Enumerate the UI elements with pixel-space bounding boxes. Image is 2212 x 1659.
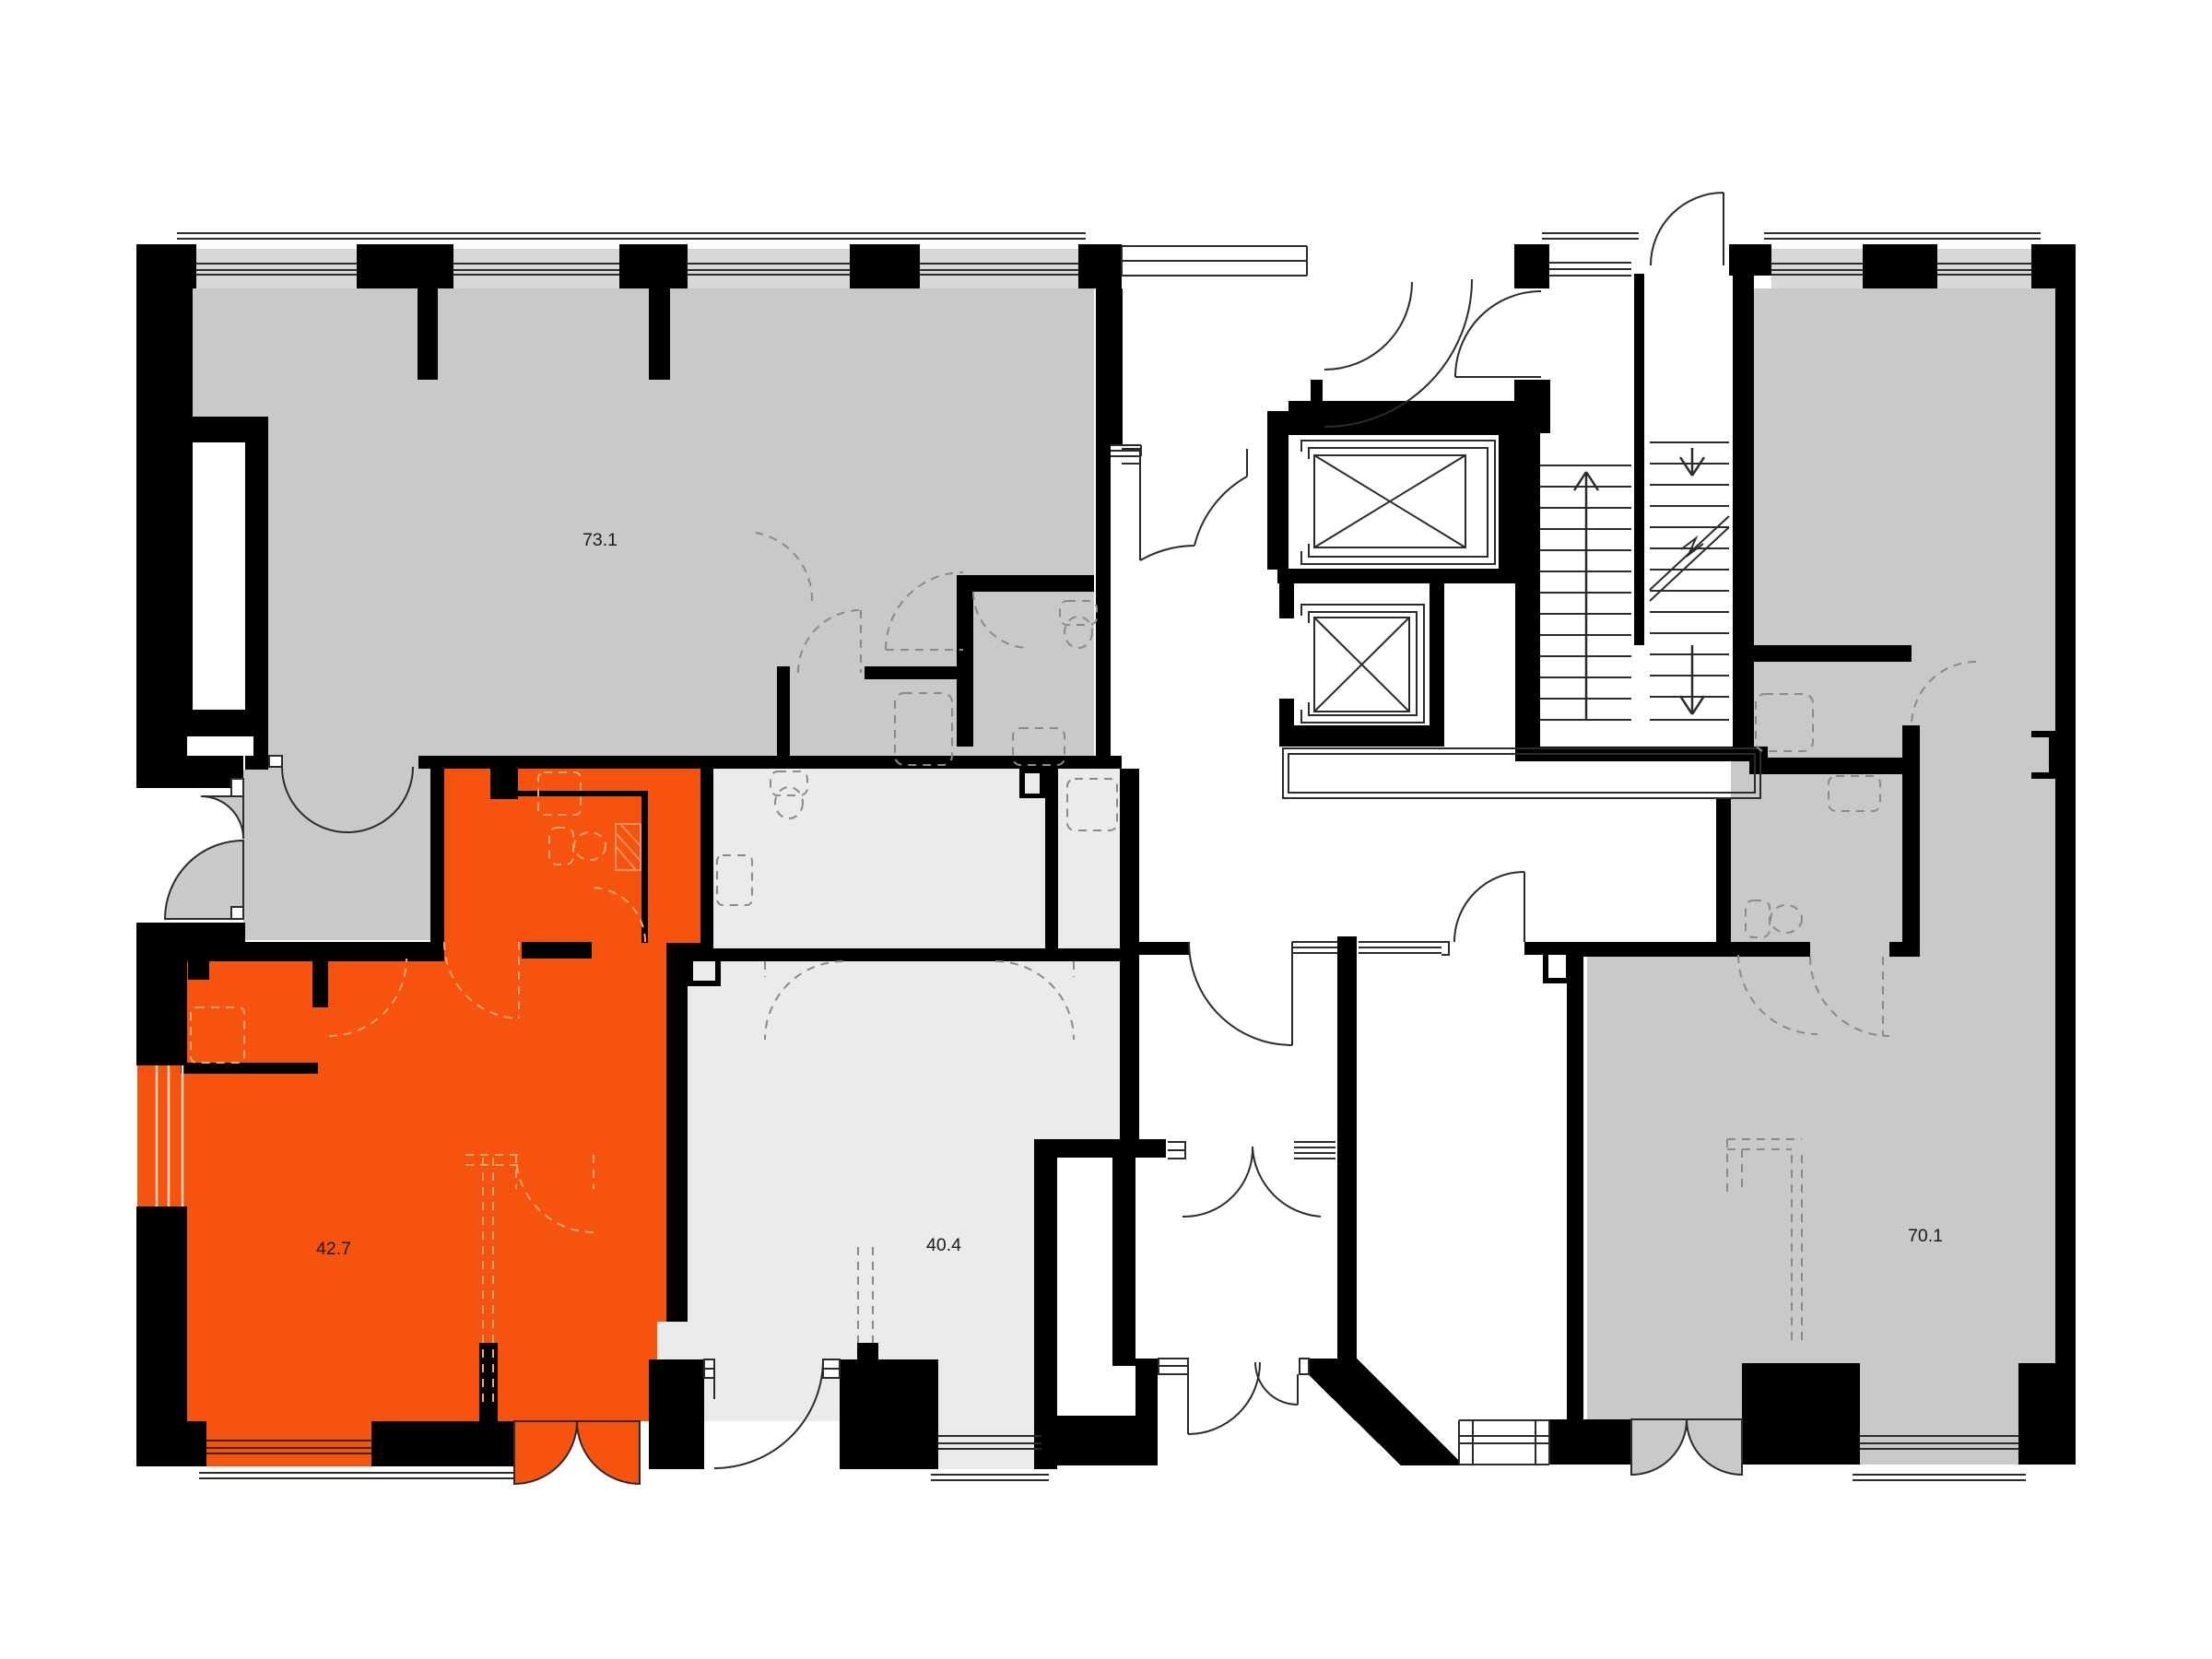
svg-text:40.4: 40.4: [926, 1235, 961, 1255]
svg-text:70.1: 70.1: [1908, 1226, 1943, 1246]
svg-text:73.1: 73.1: [582, 530, 618, 550]
svg-text:42.7: 42.7: [316, 1239, 351, 1259]
